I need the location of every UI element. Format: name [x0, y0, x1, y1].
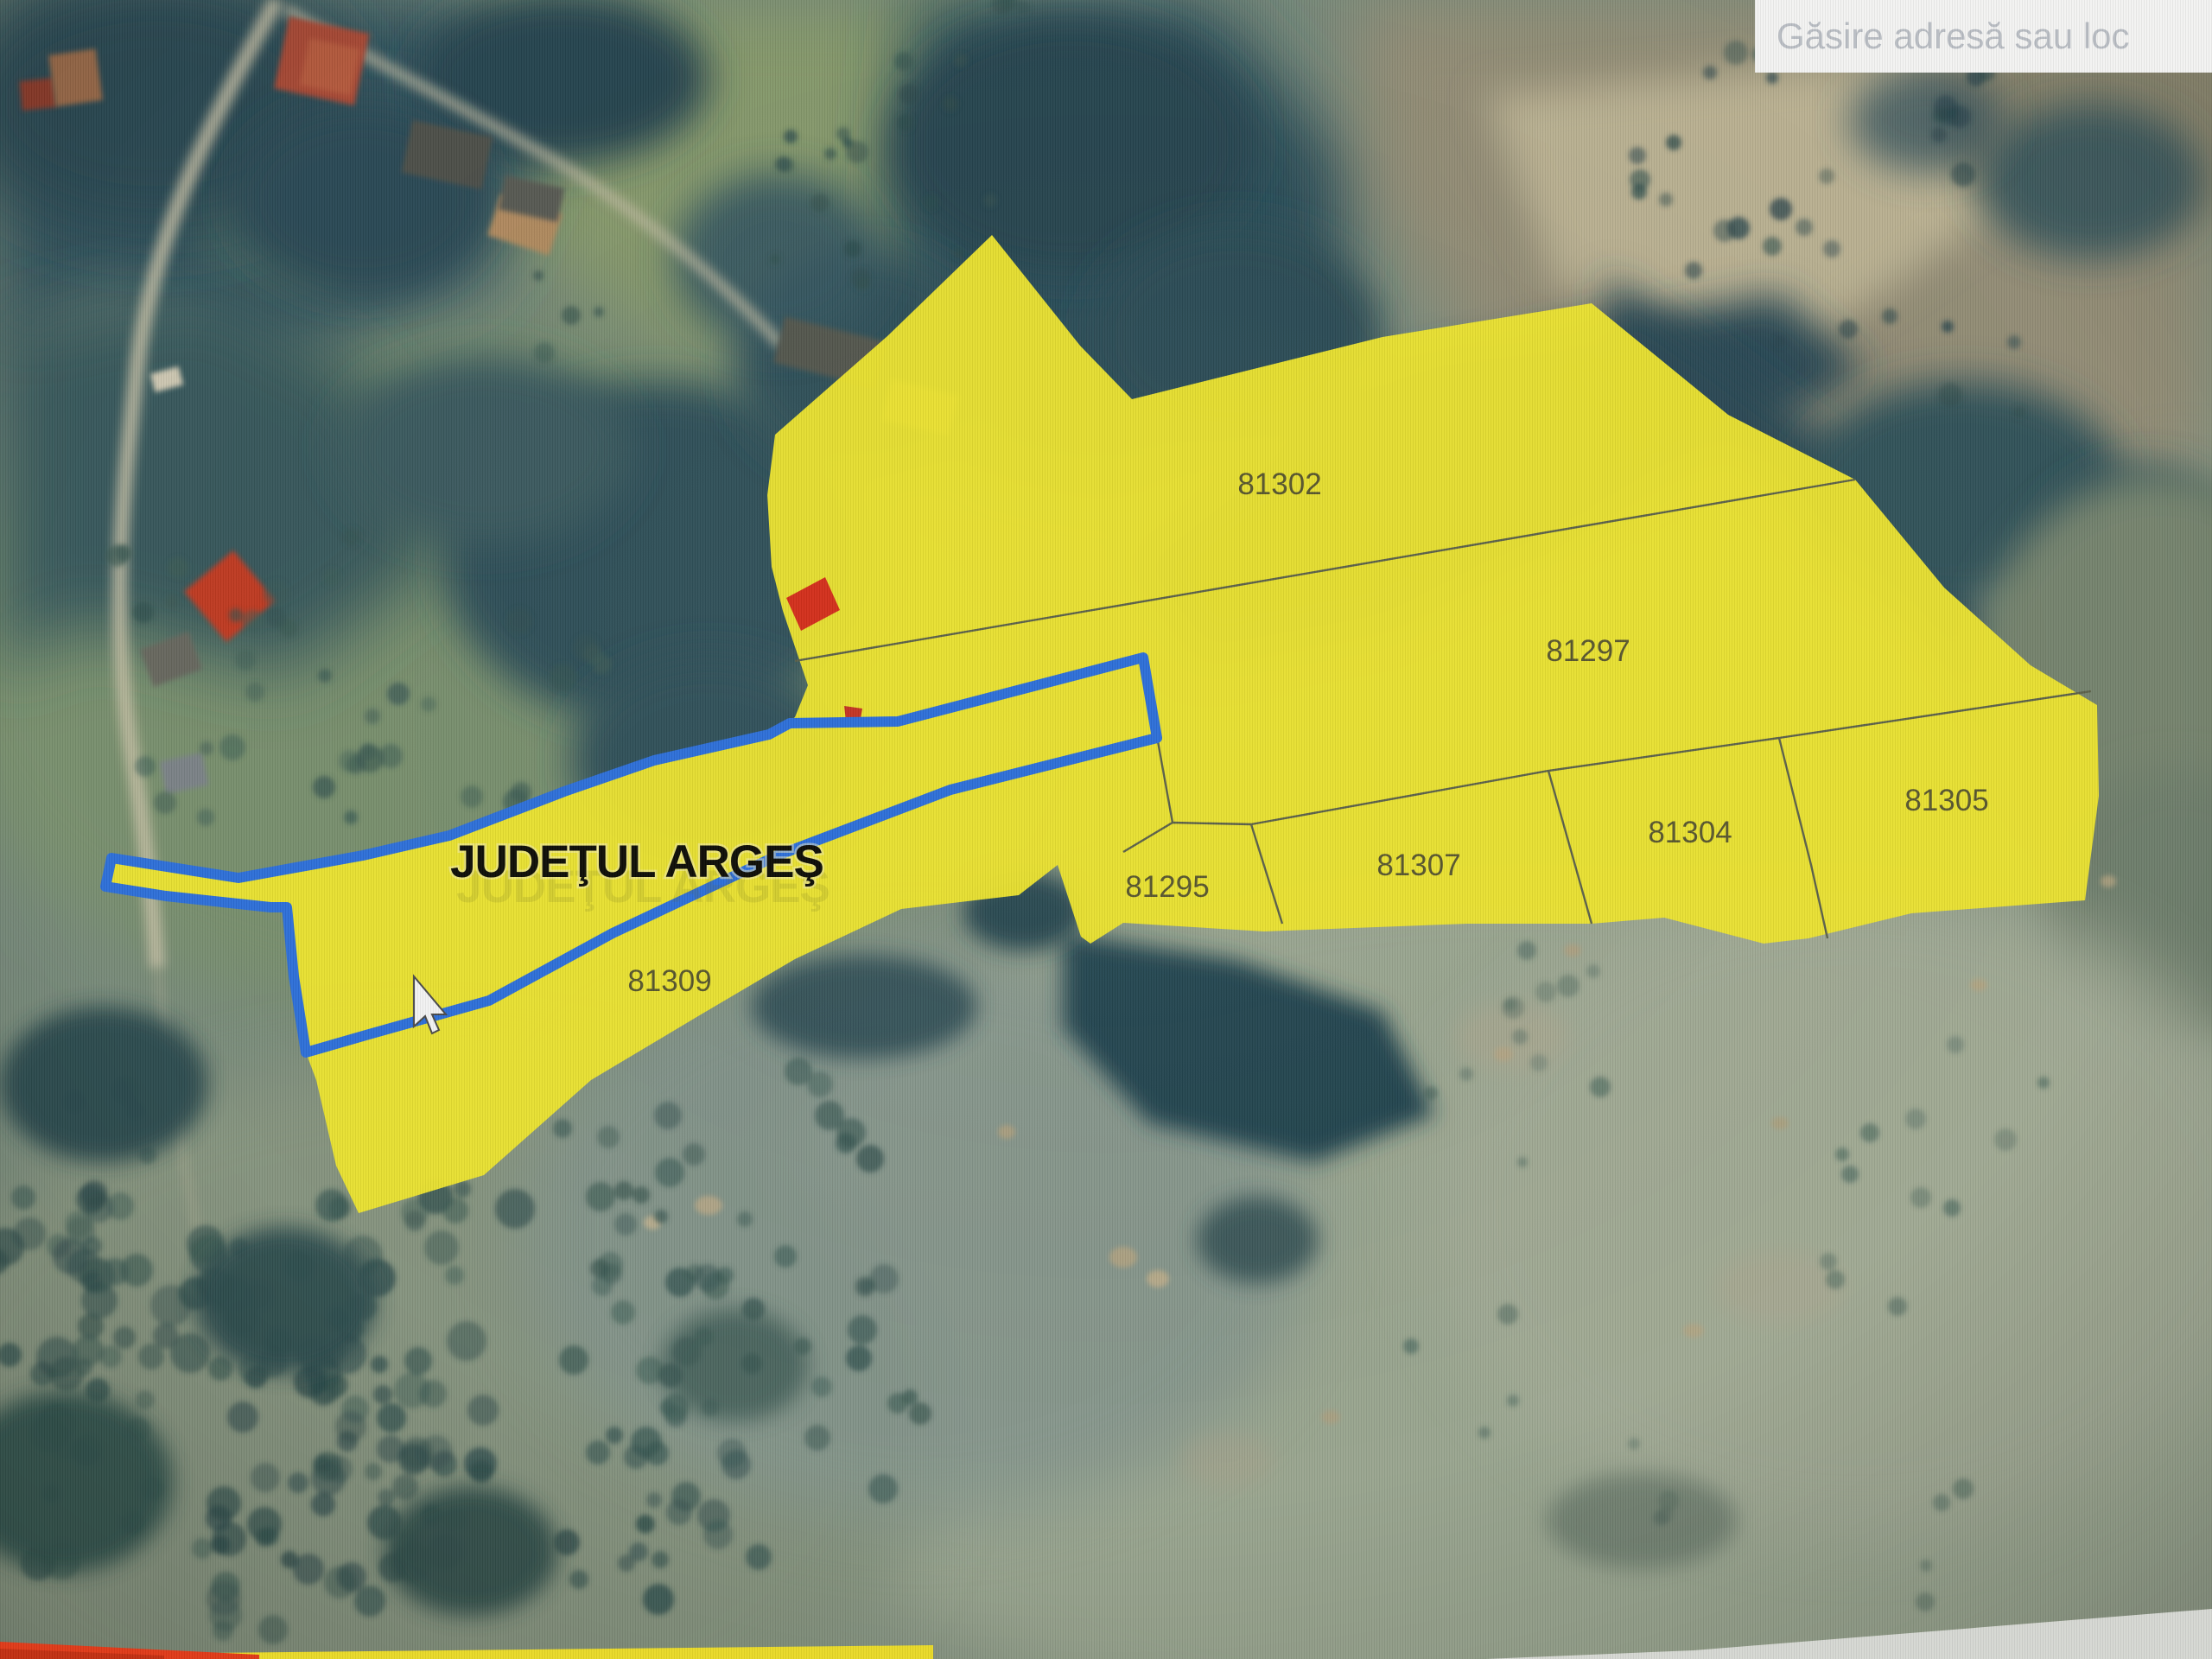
svg-text:81302: 81302	[1237, 467, 1321, 501]
svg-text:81295: 81295	[1125, 870, 1209, 904]
svg-text:81304: 81304	[1648, 816, 1732, 849]
svg-text:81305: 81305	[1904, 784, 1988, 817]
svg-text:81309: 81309	[627, 964, 711, 998]
svg-text:JUDEŢUL ARGEŞ: JUDEŢUL ARGEŞ	[450, 836, 823, 887]
svg-text:Găsire adresă sau loc: Găsire adresă sau loc	[1777, 16, 2130, 56]
svg-text:81307: 81307	[1376, 849, 1460, 882]
svg-text:81297: 81297	[1546, 634, 1630, 668]
